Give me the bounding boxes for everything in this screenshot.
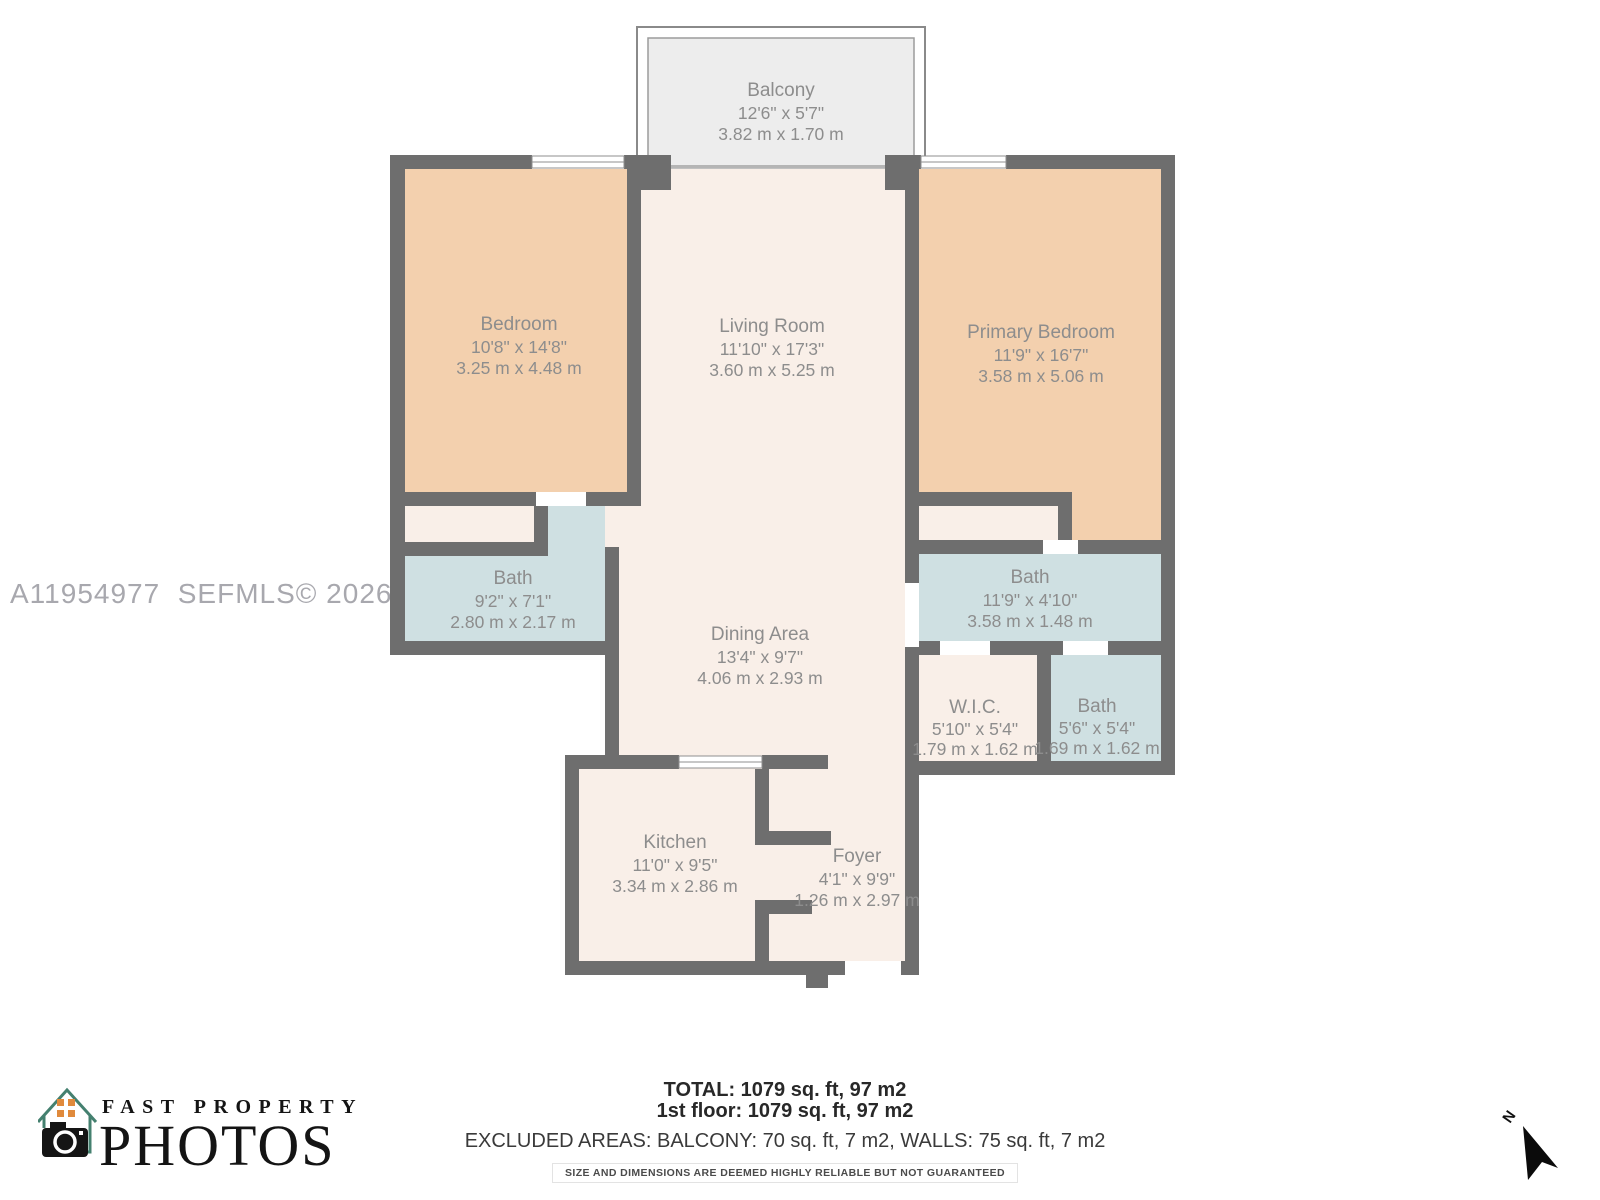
closet-left-fill: [405, 506, 534, 542]
floor-plan-page: A11954977 SEFMLS© 2026: [0, 0, 1600, 1200]
door-opening: [940, 641, 990, 655]
fast-property-photos-logo: FAST PROPERTY PHOTOS: [38, 1066, 358, 1176]
wall-segment: [762, 755, 828, 769]
room-dim-metric: 3.58 m x 1.48 m: [967, 611, 1092, 631]
door-opening: [905, 583, 919, 647]
wall-segment: [534, 506, 548, 556]
wall-segment: [390, 492, 641, 506]
room-dim-metric: 3.34 m x 2.86 m: [612, 876, 737, 896]
room-dim-metric: 3.58 m x 5.06 m: [978, 366, 1103, 386]
door-opening: [1063, 641, 1108, 655]
room-dim-imperial: 10'8" x 14'8": [471, 337, 567, 357]
room-dim-imperial: 12'6" x 5'7": [738, 103, 824, 123]
north-label: N: [1499, 1108, 1519, 1127]
room-dim-metric: 3.60 m x 5.25 m: [709, 360, 834, 380]
wall-segment: [905, 540, 1161, 554]
logo-camera-icon: [42, 1122, 88, 1157]
room-dim-imperial: 5'6" x 5'4": [1059, 718, 1136, 738]
floor-plan-drawing: Balcony 12'6" x 5'7" 3.82 m x 1.70 m Bed…: [0, 0, 1600, 1040]
house-window-pane: [57, 1110, 64, 1117]
wall-segment: [565, 961, 845, 975]
first-floor-area-text: 1st floor: 1079 sq. ft, 97 m2: [335, 1101, 1235, 1121]
room-name: Primary Bedroom: [967, 322, 1115, 343]
wall-segment: [405, 542, 534, 556]
wall-segment: [565, 755, 679, 769]
room-name: Balcony: [747, 80, 815, 101]
room-primary-bedroom-fill-extension: [1072, 492, 1161, 540]
room-dim-imperial: 11'9" x 4'10": [983, 590, 1078, 610]
room-dim-imperial: 11'9" x 16'7": [994, 345, 1089, 365]
room-name: Kitchen: [643, 832, 706, 853]
room-dim-metric: 2.80 m x 2.17 m: [450, 612, 575, 632]
room-dim-metric: 1.69 m x 1.62 m: [1034, 738, 1159, 758]
wall-segment: [1161, 155, 1175, 775]
wall-segment: [1058, 492, 1072, 540]
room-name: Foyer: [833, 846, 882, 867]
north-arrow: N: [1470, 1090, 1590, 1200]
wall-segment: [901, 961, 919, 975]
balcony-sliding-door: [671, 165, 885, 169]
logo-line2-text: PHOTOS: [99, 1113, 336, 1176]
excluded-areas-text: EXCLUDED AREAS: BALCONY: 70 sq. ft, 7 m2…: [335, 1130, 1235, 1153]
wall-segment: [905, 492, 1072, 506]
entry-door-opening: [845, 961, 901, 975]
house-window-pane: [68, 1099, 75, 1106]
room-dim-metric: 1.79 m x 1.62 m: [912, 739, 1037, 759]
room-name: Bath: [1010, 567, 1049, 588]
closet-right-fill: [919, 506, 1058, 540]
room-name: Bath: [1077, 696, 1116, 717]
house-window-pane: [57, 1099, 64, 1106]
disclaimer-text: SIZE AND DIMENSIONS ARE DEEMED HIGHLY RE…: [552, 1163, 1018, 1183]
wall-segment: [1006, 155, 1175, 169]
wall-segment: [755, 831, 831, 845]
room-dim-imperial: 9'2" x 7'1": [475, 591, 552, 611]
door-opening: [1043, 540, 1078, 554]
wall-segment: [390, 155, 532, 169]
total-area-text: TOTAL: 1079 sq. ft, 97 m2: [335, 1080, 1235, 1100]
wall-segment: [641, 155, 671, 190]
room-dim-imperial: 11'10" x 17'3": [720, 339, 824, 359]
room-label-living-room: Living Room 11'10" x 17'3" 3.60 m x 5.25…: [709, 316, 834, 380]
door-opening: [536, 492, 586, 506]
room-dim-metric: 3.25 m x 4.48 m: [456, 358, 581, 378]
room-dim-imperial: 11'0" x 9'5": [633, 855, 718, 875]
house-window-pane: [68, 1110, 75, 1117]
wall-segment: [605, 547, 619, 769]
wall-segment: [905, 647, 919, 975]
room-name: Bedroom: [480, 314, 557, 335]
room-bath-left-entry-fill: [548, 506, 605, 556]
wall-segment: [390, 155, 405, 655]
room-dim-imperial: 5'10" x 5'4": [932, 719, 1018, 739]
room-dim-metric: 3.82 m x 1.70 m: [718, 124, 843, 144]
room-name: Living Room: [719, 316, 825, 337]
wall-segment: [806, 975, 828, 988]
room-dim-metric: 1.26 m x 2.97 m: [794, 890, 919, 910]
wall-segment: [905, 155, 919, 583]
north-arrow-icon: [1523, 1126, 1558, 1180]
room-name: Bath: [493, 568, 532, 589]
camera-flash-dot: [79, 1131, 83, 1135]
room-dim-imperial: 13'4" x 9'7": [717, 647, 803, 667]
room-name: Dining Area: [711, 624, 810, 645]
room-dim-metric: 4.06 m x 2.93 m: [697, 668, 822, 688]
room-name: W.I.C.: [949, 697, 1001, 718]
room-dim-imperial: 4'1" x 9'9": [819, 869, 896, 889]
wall-segment: [905, 761, 1175, 775]
wall-segment: [627, 155, 641, 502]
house-roof: [38, 1090, 96, 1122]
area-summary: TOTAL: 1079 sq. ft, 97 m2 1st floor: 107…: [335, 1080, 1235, 1183]
wall-segment: [565, 755, 579, 975]
wall-segment: [390, 641, 617, 655]
